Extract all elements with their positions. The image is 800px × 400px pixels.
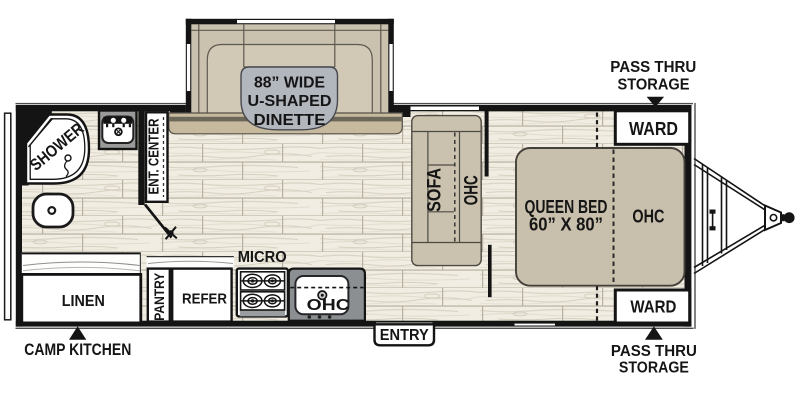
svg-text:60” X 80”: 60” X 80” (529, 215, 603, 235)
svg-text:OHC: OHC (462, 175, 483, 205)
svg-text:ENTRY: ENTRY (380, 327, 430, 344)
svg-text:OHC: OHC (307, 297, 351, 314)
svg-text:PASS THRU: PASS THRU (610, 59, 696, 76)
svg-text:SOFA: SOFA (425, 168, 446, 212)
svg-text:PASS THRU: PASS THRU (611, 343, 697, 360)
svg-text:STORAGE: STORAGE (618, 77, 690, 94)
svg-text:REFER: REFER (182, 292, 228, 308)
svg-text:OHC: OHC (632, 206, 664, 227)
svg-text:CAMP KITCHEN: CAMP KITCHEN (24, 341, 131, 359)
svg-text:WARD: WARD (630, 296, 676, 316)
svg-text:WARD: WARD (629, 119, 678, 139)
svg-text:PANTRY: PANTRY (151, 272, 167, 321)
svg-text:DINETTE: DINETTE (254, 112, 326, 129)
svg-text:MICRO: MICRO (238, 249, 287, 266)
svg-text:U-SHAPED: U-SHAPED (248, 93, 332, 110)
svg-text:LINEN: LINEN (62, 293, 105, 310)
svg-text:STORAGE: STORAGE (619, 359, 689, 376)
svg-text:88” WIDE: 88” WIDE (254, 74, 325, 91)
svg-text:ENT. CENTER: ENT. CENTER (147, 118, 163, 194)
